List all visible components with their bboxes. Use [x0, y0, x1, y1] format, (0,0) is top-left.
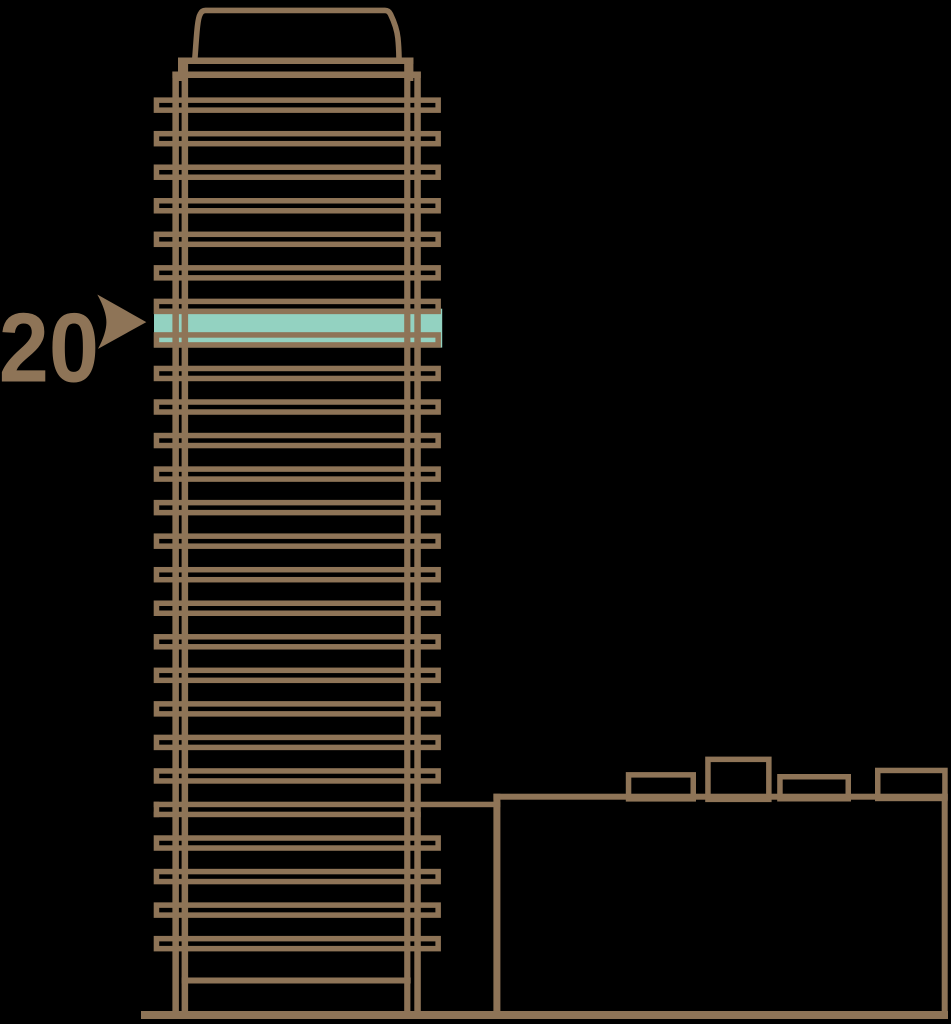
svg-text:20: 20	[0, 293, 99, 402]
